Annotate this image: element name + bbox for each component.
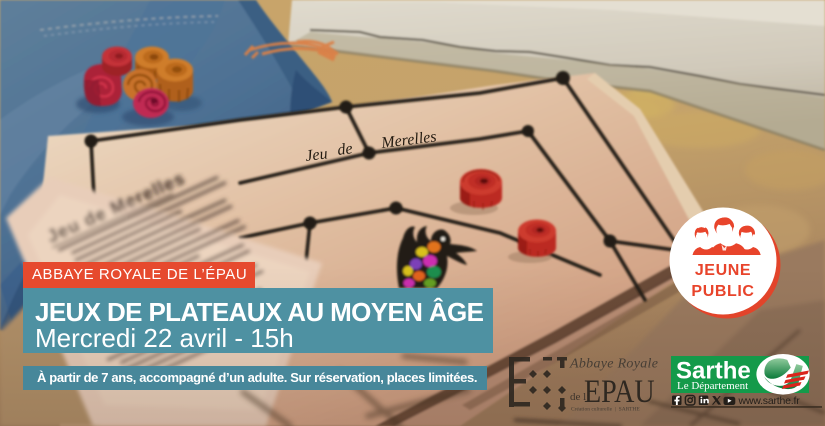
svg-text:EPAU: EPAU [584, 373, 655, 410]
svg-text:de: de [336, 140, 353, 159]
svg-text:Création culturelle | SARTHE: Création culturelle | SARTHE [571, 407, 640, 413]
svg-text:Le Département: Le Département [677, 380, 748, 392]
svg-text:PUBLIC: PUBLIC [691, 283, 754, 300]
svg-text:Abbaye Royale: Abbaye Royale [569, 357, 658, 372]
svg-text:www.sarthe.fr: www.sarthe.fr [738, 395, 801, 407]
svg-text:JEUNE: JEUNE [695, 262, 751, 279]
svg-text:Jeu: Jeu [304, 145, 328, 165]
